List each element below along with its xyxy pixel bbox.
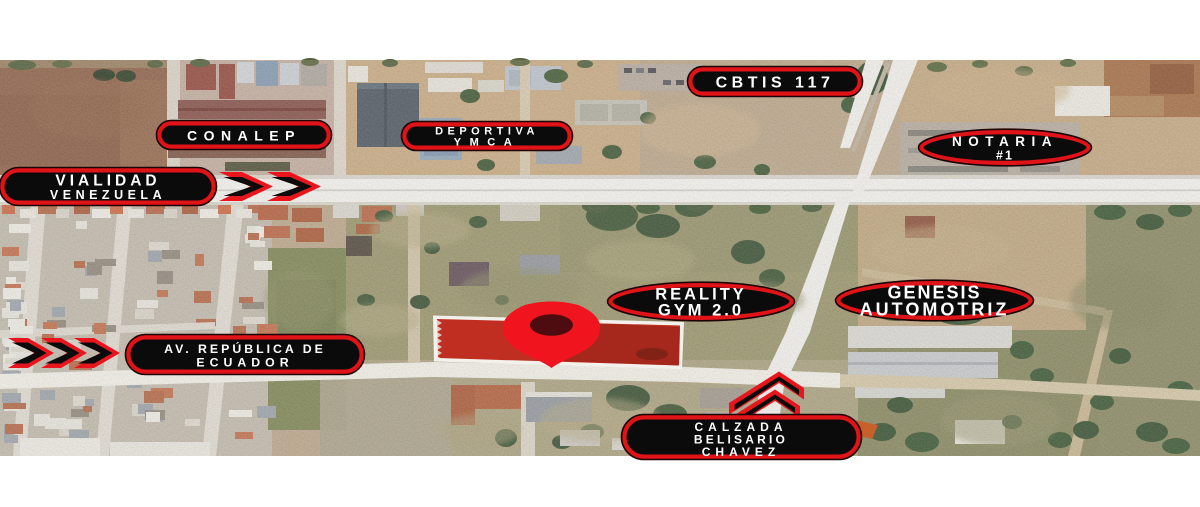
svg-text:VIALIDAD: VIALIDAD [55, 173, 160, 190]
svg-text:CONALEP: CONALEP [187, 128, 301, 144]
svg-text:AUTOMOTRIZ: AUTOMOTRIZ [860, 300, 1010, 320]
svg-text:#1: #1 [996, 149, 1014, 163]
svg-text:CBTIS 117: CBTIS 117 [716, 75, 835, 92]
svg-text:ECUADOR: ECUADOR [196, 356, 293, 370]
svg-text:NOTARIA: NOTARIA [952, 134, 1058, 149]
svg-text:YMCA: YMCA [454, 137, 520, 149]
svg-text:AV. REPÚBLICA DE: AV. REPÚBLICA DE [164, 341, 326, 356]
svg-text:GYM 2.0: GYM 2.0 [658, 302, 744, 320]
svg-text:CHAVEZ: CHAVEZ [702, 445, 780, 459]
svg-text:VENEZUELA: VENEZUELA [50, 188, 166, 202]
